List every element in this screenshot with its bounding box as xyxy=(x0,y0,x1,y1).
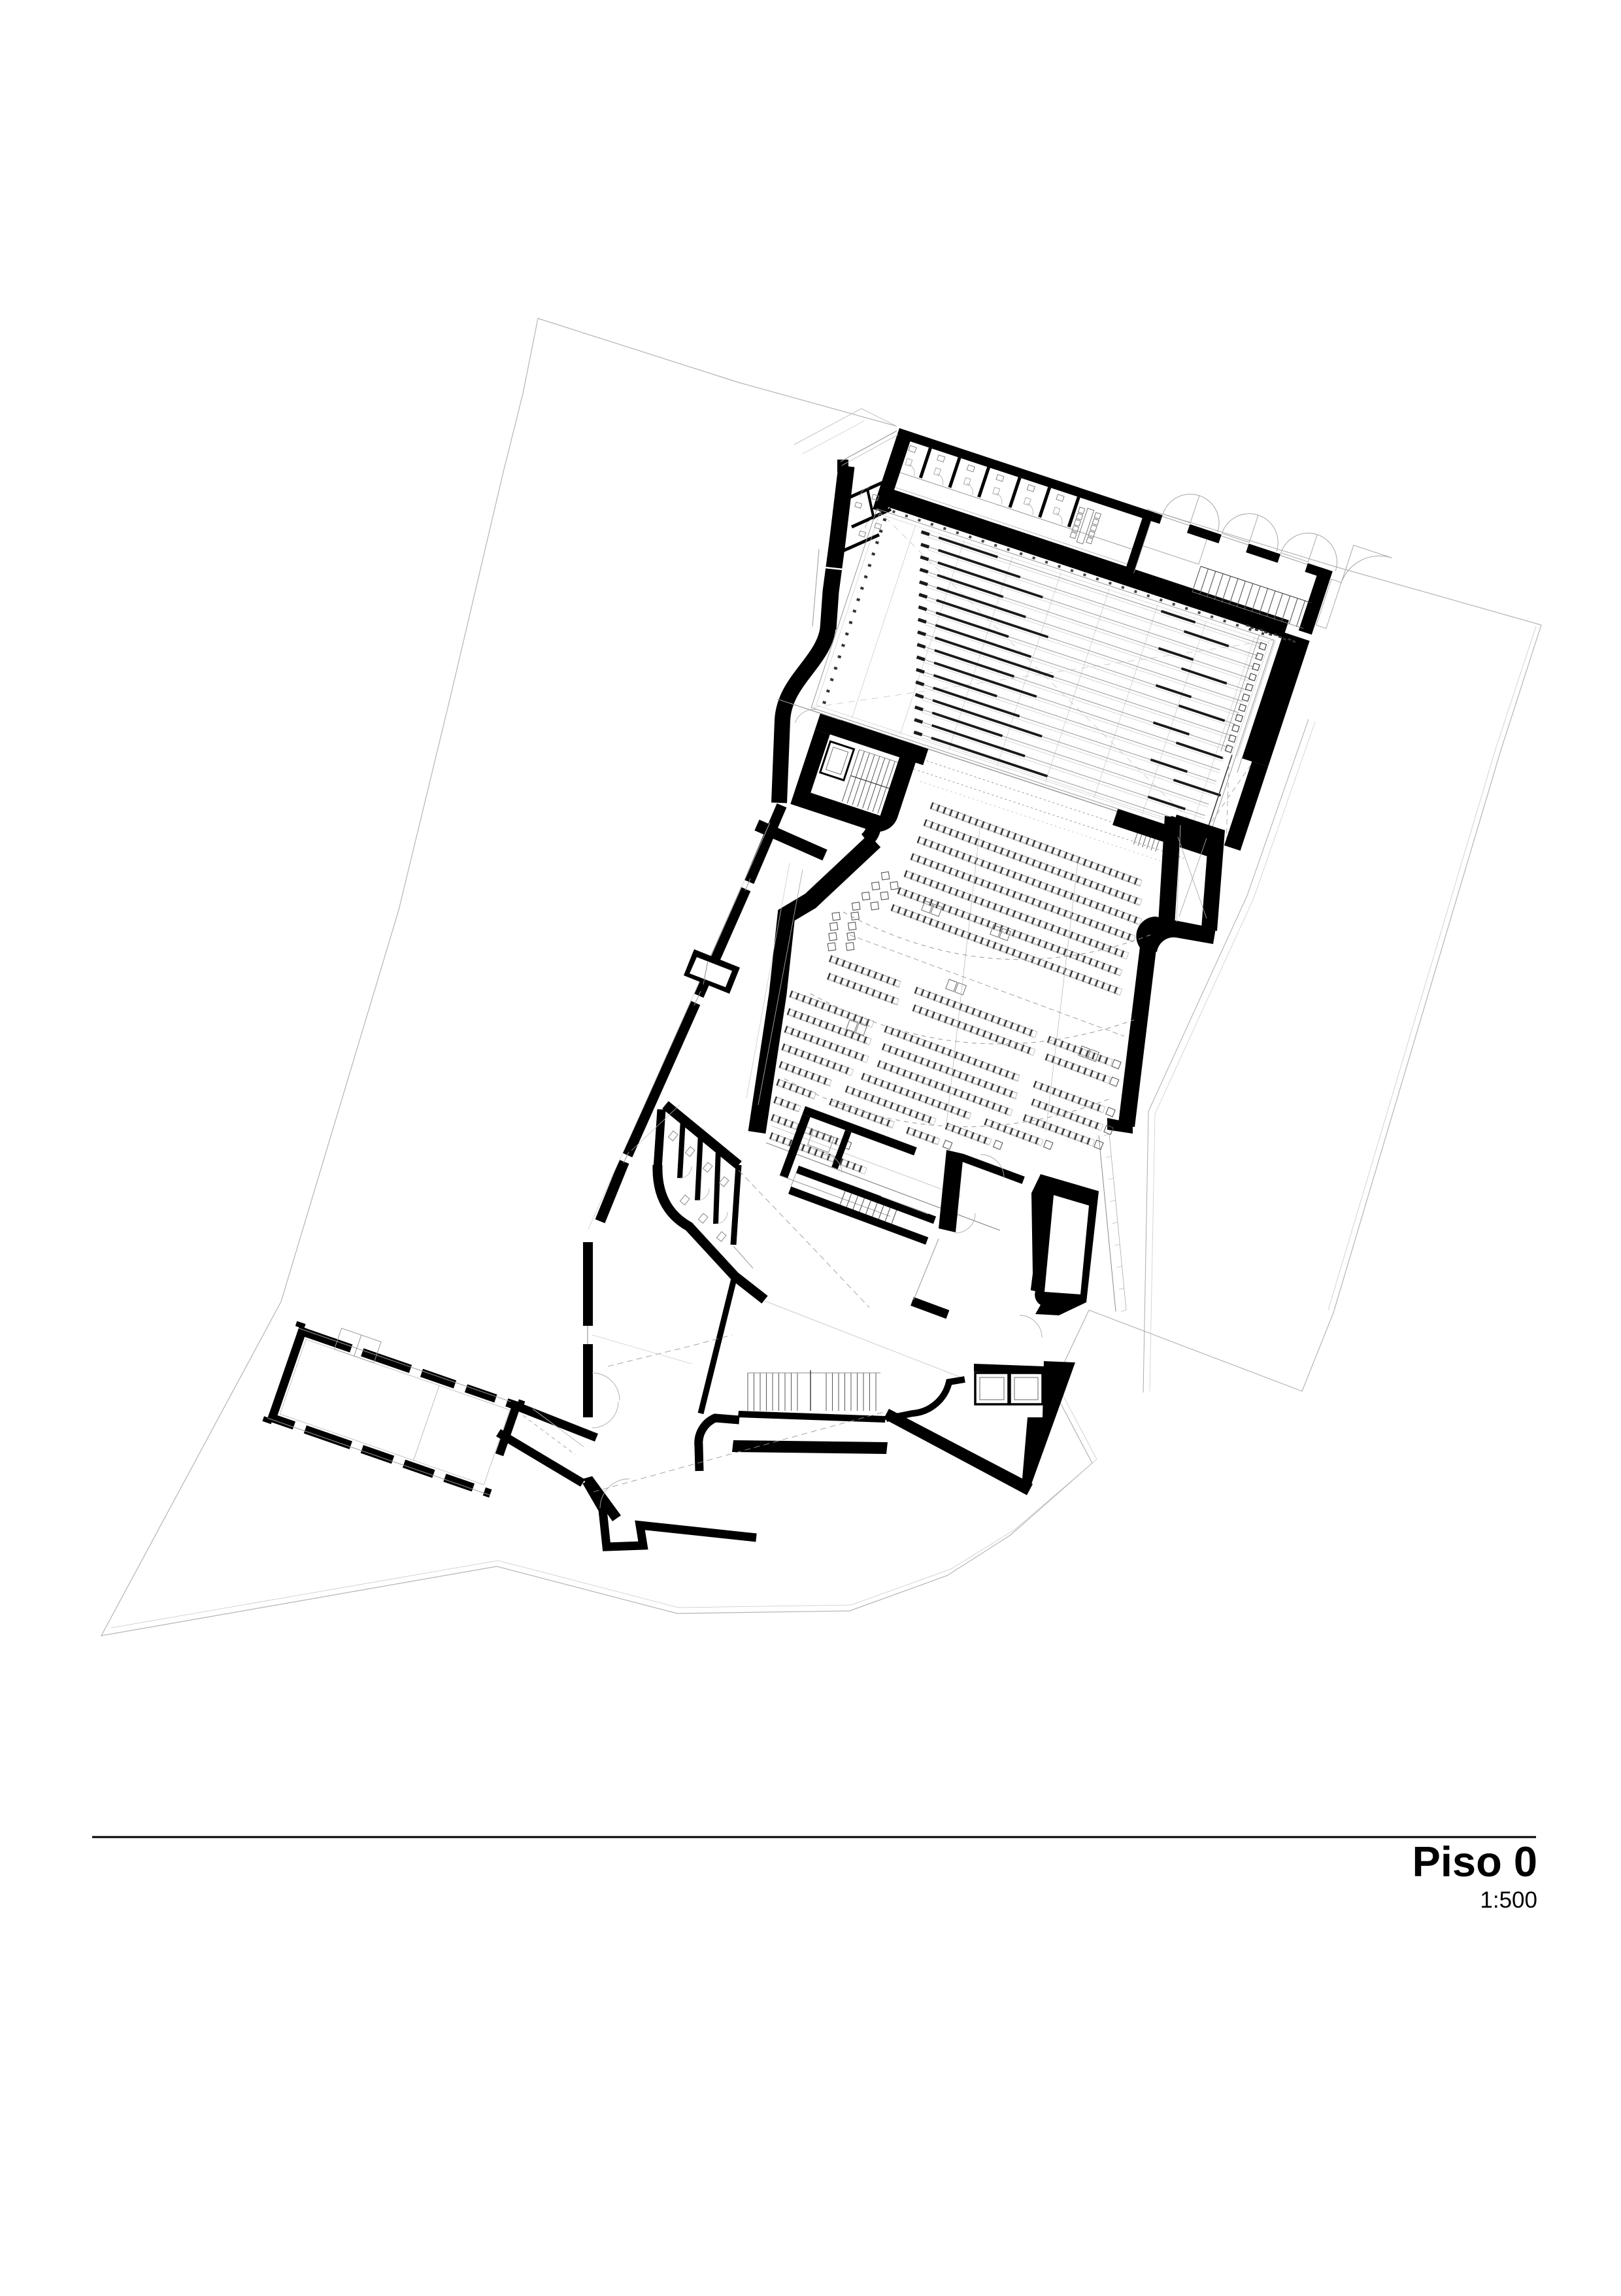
svg-text:Piso 0: Piso 0 xyxy=(1412,1838,1537,1885)
svg-text:1:500: 1:500 xyxy=(1480,1887,1537,1913)
